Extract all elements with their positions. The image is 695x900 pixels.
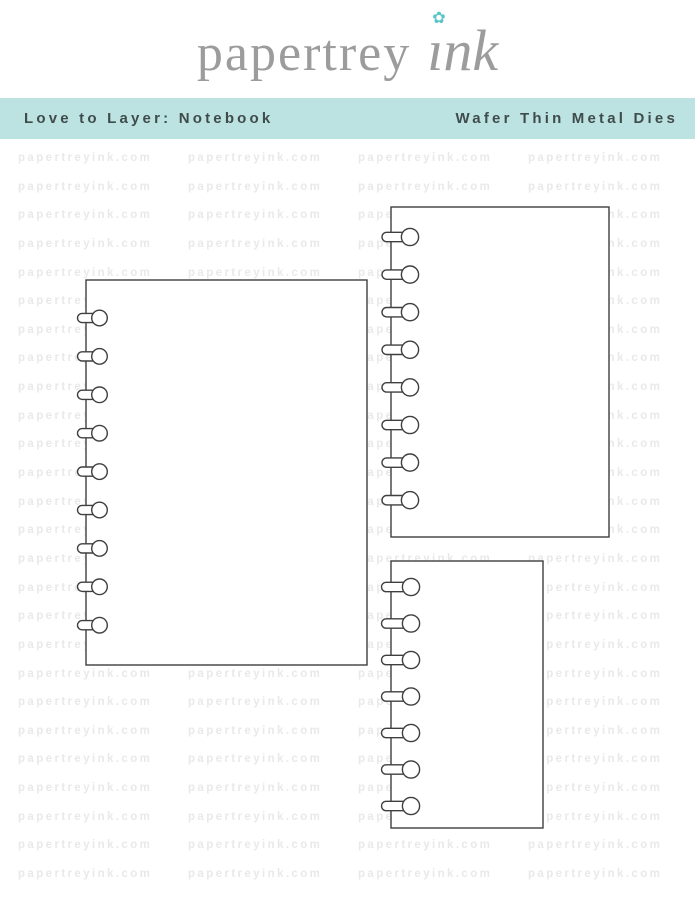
binding-hole-circle xyxy=(401,228,418,245)
brand-logo: papertrey✿ınk xyxy=(0,22,695,80)
product-banner: Love to Layer: Notebook Wafer Thin Metal… xyxy=(0,98,695,139)
binding-hole-circle xyxy=(401,341,418,358)
binding-hole-circle xyxy=(402,761,419,778)
product-image: papertreyink.compapertreyink.compapertre… xyxy=(0,0,695,900)
brand-wordmark: papertrey xyxy=(197,25,411,82)
die-notebook-page-large xyxy=(78,280,368,665)
binding-hole-circle xyxy=(401,416,418,433)
binding-hole-circle xyxy=(402,651,419,668)
die-notebook-page-small xyxy=(382,561,544,828)
binding-hole-circle xyxy=(401,492,418,509)
product-type-label: Wafer Thin Metal Dies xyxy=(455,110,678,127)
binding-hole-circle xyxy=(92,579,108,595)
brand-ink-text: ınk xyxy=(427,18,498,83)
product-name-label: Love to Layer: Notebook xyxy=(24,110,273,127)
binding-hole-circle xyxy=(92,502,108,518)
binding-hole-circle xyxy=(401,304,418,321)
flower-icon: ✿ xyxy=(432,11,445,27)
binding-hole-circle xyxy=(401,379,418,396)
binding-hole-circle xyxy=(402,578,419,595)
binding-hole-circle xyxy=(92,617,108,633)
binding-hole-circle xyxy=(402,615,419,632)
binding-hole-circle xyxy=(402,797,419,814)
binding-hole-circle xyxy=(401,266,418,283)
binding-hole-circle xyxy=(402,688,419,705)
binding-hole-circle xyxy=(92,541,108,557)
die-notebook-page-medium xyxy=(382,207,609,537)
binding-hole-circle xyxy=(92,425,108,441)
binding-hole-circle xyxy=(92,387,108,403)
binding-hole-circle xyxy=(92,464,108,480)
binding-hole-circle xyxy=(92,310,108,326)
binding-hole-circle xyxy=(92,349,108,365)
binding-hole-circle xyxy=(402,724,419,741)
brand-ink-script: ✿ınk xyxy=(427,22,498,80)
binding-hole-circle xyxy=(401,454,418,471)
